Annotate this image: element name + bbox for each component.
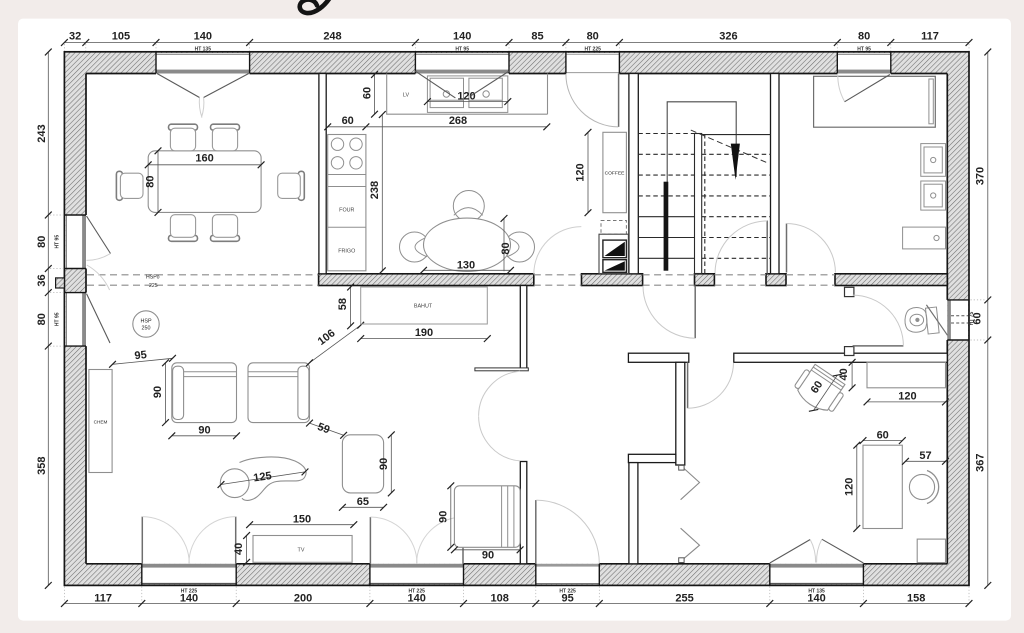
svg-text:108: 108 (491, 592, 509, 604)
svg-text:190: 190 (415, 327, 433, 339)
svg-text:FRIGO: FRIGO (338, 249, 355, 255)
svg-text:FOUR: FOUR (339, 208, 354, 214)
svg-text:HT 135: HT 135 (808, 588, 825, 594)
svg-text:120: 120 (575, 163, 587, 181)
svg-text:370: 370 (975, 167, 987, 185)
svg-text:32: 32 (69, 31, 81, 43)
svg-text:80: 80 (36, 236, 48, 248)
svg-text:255: 255 (675, 592, 693, 604)
svg-text:60: 60 (342, 115, 354, 127)
svg-text:238: 238 (369, 181, 381, 199)
svg-text:HSPo: HSPo (146, 274, 160, 280)
svg-text:140: 140 (194, 31, 212, 43)
svg-text:248: 248 (323, 31, 341, 43)
svg-text:80: 80 (36, 313, 48, 325)
svg-text:358: 358 (36, 457, 48, 475)
svg-text:140: 140 (453, 31, 471, 43)
svg-text:HT 95: HT 95 (857, 46, 871, 52)
svg-text:243: 243 (36, 124, 48, 142)
svg-text:90: 90 (198, 425, 210, 437)
svg-text:125: 125 (253, 470, 273, 484)
svg-text:120: 120 (843, 478, 855, 496)
svg-text:117: 117 (921, 31, 939, 43)
svg-text:LV: LV (403, 93, 410, 99)
svg-text:HT 225: HT 225 (584, 46, 601, 52)
svg-text:250: 250 (142, 326, 151, 332)
svg-text:HT 95: HT 95 (55, 235, 61, 249)
svg-text:95: 95 (134, 349, 147, 362)
svg-text:90: 90 (378, 458, 390, 470)
svg-text:40: 40 (233, 543, 245, 555)
svg-text:HSP: HSP (140, 319, 151, 325)
svg-text:58: 58 (337, 298, 349, 310)
svg-text:COFFEE: COFFEE (605, 171, 626, 177)
svg-text:130: 130 (457, 259, 475, 271)
svg-text:TV: TV (298, 548, 305, 554)
svg-text:200: 200 (294, 592, 312, 604)
svg-text:80: 80 (587, 31, 599, 43)
svg-text:BAHUT: BAHUT (414, 304, 433, 310)
svg-text:90: 90 (152, 386, 164, 398)
svg-text:HT 225: HT 225 (559, 588, 576, 594)
svg-text:117: 117 (94, 592, 112, 604)
svg-text:160: 160 (195, 153, 213, 165)
svg-text:158: 158 (907, 592, 925, 604)
svg-text:105: 105 (112, 31, 130, 43)
svg-text:HT 225: HT 225 (181, 588, 198, 594)
svg-text:367: 367 (975, 454, 987, 472)
svg-text:HT 75: HT 75 (969, 311, 975, 325)
svg-text:85: 85 (531, 31, 543, 43)
svg-text:60: 60 (877, 429, 889, 441)
svg-text:90: 90 (482, 549, 494, 561)
svg-text:326: 326 (719, 31, 737, 43)
svg-text:80: 80 (858, 31, 870, 43)
svg-text:90: 90 (437, 511, 449, 523)
svg-text:120: 120 (898, 390, 916, 402)
svg-text:80: 80 (500, 242, 512, 254)
svg-text:150: 150 (293, 513, 311, 525)
svg-text:268: 268 (449, 115, 467, 127)
svg-text:36: 36 (36, 274, 48, 286)
svg-text:80: 80 (145, 175, 157, 187)
svg-text:CHEM: CHEM (94, 420, 108, 425)
svg-text:65: 65 (357, 496, 369, 508)
svg-text:HT 135: HT 135 (195, 46, 212, 52)
svg-text:HT 225: HT 225 (408, 588, 425, 594)
svg-text:HT 95: HT 95 (55, 312, 61, 326)
svg-text:57: 57 (919, 450, 931, 462)
svg-text:60: 60 (361, 87, 373, 99)
svg-text:225: 225 (149, 283, 158, 289)
svg-text:120: 120 (457, 90, 475, 102)
svg-text:HT 95: HT 95 (455, 46, 469, 52)
